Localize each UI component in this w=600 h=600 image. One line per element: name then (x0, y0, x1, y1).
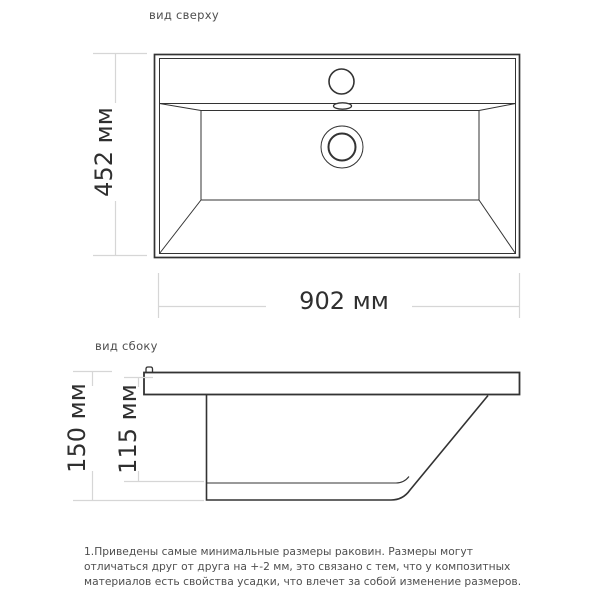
side-rim-slab (144, 373, 520, 395)
basin-corner-slope-right (479, 104, 516, 111)
dimension-label-depth: 452 мм (90, 107, 118, 197)
top-view-title: вид сверху (149, 8, 219, 22)
sink-inner-edge (160, 59, 516, 254)
sink-outer-edge (155, 55, 520, 258)
side-basin-inner-bottom (207, 477, 410, 484)
drain-outer-ring (321, 126, 363, 168)
footnote-line-2: отличаться друг от друга на +-2 мм, это … (84, 559, 521, 574)
side-view-title: вид сбоку (95, 339, 158, 353)
sink-dimension-diagram: вид сверху вид сбоку 452 мм 902 мм 150 м… (0, 0, 600, 600)
overflow-hole (334, 103, 352, 109)
dimension-label-height: 150 мм (63, 383, 91, 473)
basin-corner-slope-left (160, 104, 202, 111)
top-view-drawing (155, 55, 520, 258)
basin-floor (201, 111, 479, 201)
footnote-line-3: материалов есть свойства усадки, что вле… (84, 574, 521, 589)
side-view-drawing (144, 367, 520, 500)
faucet-hole (329, 69, 354, 94)
side-basin-outline (207, 395, 489, 501)
footnote: 1.Приведены самые минимальные размеры ра… (84, 544, 521, 589)
dimension-label-basin-depth: 115 мм (114, 384, 142, 474)
dimension-label-width: 902 мм (299, 287, 389, 315)
drain-hole (329, 134, 356, 161)
side-back-lip (146, 367, 153, 372)
footnote-line-1: 1.Приведены самые минимальные размеры ра… (84, 544, 521, 559)
basin-front-slope-left (160, 200, 202, 254)
basin-front-slope-right (479, 200, 516, 254)
